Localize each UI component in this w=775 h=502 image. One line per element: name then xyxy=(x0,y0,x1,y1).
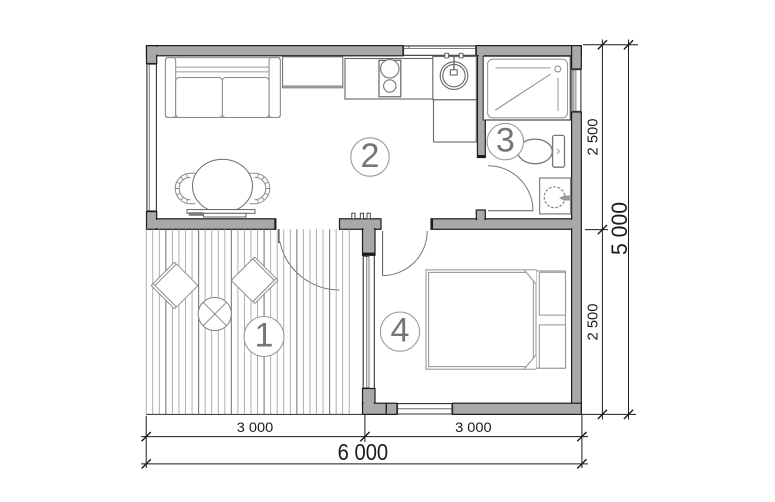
svg-text:5 000: 5 000 xyxy=(607,202,632,255)
svg-text:3: 3 xyxy=(496,121,515,159)
svg-text:3 000: 3 000 xyxy=(455,419,492,435)
svg-text:2 500: 2 500 xyxy=(585,119,602,156)
svg-text:3 000: 3 000 xyxy=(237,419,274,435)
svg-text:2: 2 xyxy=(361,137,380,175)
svg-text:2 500: 2 500 xyxy=(585,304,602,341)
svg-text:1: 1 xyxy=(255,316,274,354)
svg-text:4: 4 xyxy=(391,311,410,349)
svg-text:6 000: 6 000 xyxy=(338,439,389,465)
